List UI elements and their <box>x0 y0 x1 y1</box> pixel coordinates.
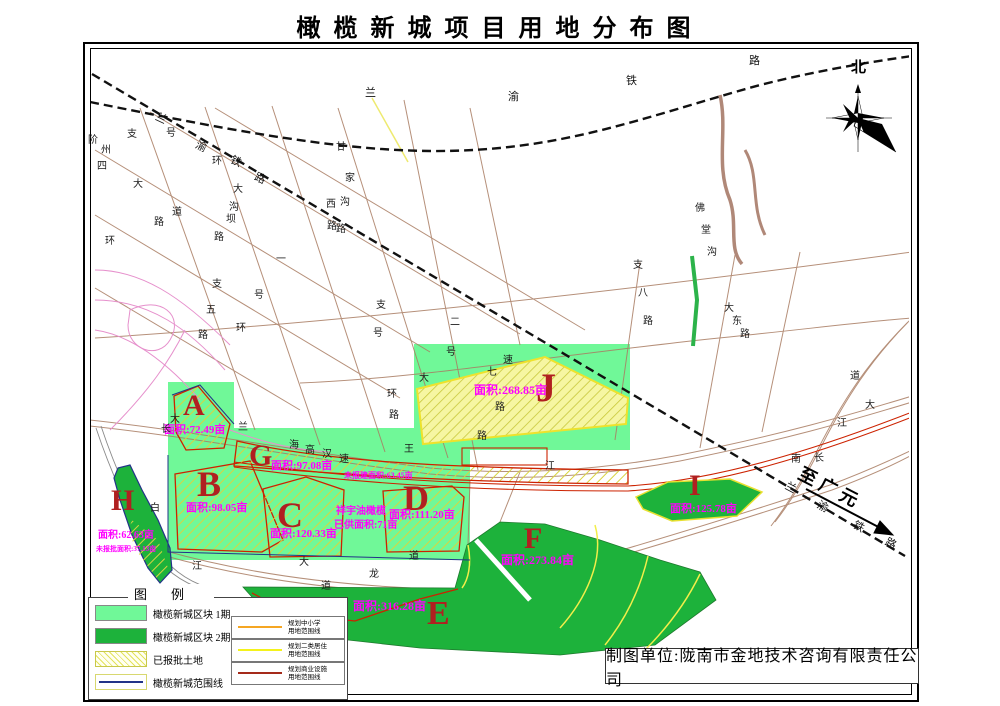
road-name-label: 支 <box>212 280 222 290</box>
legend-line-label: 规划中小学用地范围线 <box>288 620 321 635</box>
north-label: 北 <box>851 56 866 77</box>
road-name-label: 路 <box>643 317 653 327</box>
road-name-label: 东 <box>732 317 742 327</box>
legend-line-label: 规划二类居住用地范围线 <box>288 643 327 658</box>
zone-area-label-I: 面积:125.78亩 <box>670 504 737 515</box>
road-name-label: 汉 <box>322 450 332 460</box>
road-name-label: 长 <box>814 454 824 464</box>
road-name-label: 江 <box>837 419 847 429</box>
road-name-label: 道 <box>321 582 331 592</box>
road-name-label: 八 <box>638 289 648 299</box>
railway-name-label: 渝 <box>508 92 519 103</box>
zone-area-label-C: 面积:120.33亩 <box>270 529 337 540</box>
road-name-label: 大 <box>299 558 309 568</box>
zone-letter-G: G <box>249 441 272 471</box>
road-name-label: 路 <box>198 331 208 341</box>
caption-box: 制图单位:陇南市金地技术咨询有限责任公司 <box>605 648 919 684</box>
road-name-label: 环 <box>236 324 246 334</box>
road-name-label: 支 <box>376 301 386 311</box>
road-name-label: 江 <box>192 562 202 572</box>
road-name-label: 号 <box>166 129 176 139</box>
road-name-label: 环 <box>105 237 115 247</box>
road-name-label: 号 <box>254 291 264 301</box>
legend-area-label: 橄榄新城区块 2期 <box>153 629 231 644</box>
road-name-label: 大 <box>170 415 180 425</box>
road-name-label: 路 <box>740 330 750 340</box>
zone-letter-I: I <box>689 471 701 501</box>
railway-name-label: 路 <box>749 56 760 67</box>
zone-area-label-G: 面积:97.08亩 <box>271 461 332 472</box>
zone-area-label-B: 面积:98.05亩 <box>186 503 247 514</box>
road-name-label: 兰 <box>238 423 248 433</box>
road-name-label: 七 <box>487 368 497 378</box>
legend-line-label: 规划商业设施用地范围线 <box>288 666 327 681</box>
legend-title: 图例 <box>128 584 214 603</box>
road-name-label: 路 <box>154 218 164 228</box>
zone-extra-label-G: 未报建面积:63.45亩 <box>344 472 413 480</box>
legend-area-label: 已报批土地 <box>153 652 203 667</box>
legend-swatch-fill-dark <box>95 628 147 644</box>
note-label-0: 祥宇油橄榄 <box>336 507 386 517</box>
road-name-label: 堂 <box>701 226 711 236</box>
road-name-label: 长 <box>161 425 171 435</box>
road-name-label: 高 <box>305 446 315 456</box>
legend-line-item: 规划商业设施用地范围线 <box>231 662 345 685</box>
road-name-label: 二 <box>450 318 460 328</box>
road-name-label: 环 <box>212 157 222 167</box>
road-name-label: 路 <box>495 403 505 413</box>
zone-area-label-A: 面积:72.49亩 <box>164 425 225 436</box>
legend-area-label: 橄榄新城范围线 <box>153 675 223 690</box>
legend-line-item: 规划二类居住用地范围线 <box>231 639 345 662</box>
legend-line-swatch <box>238 626 282 628</box>
road-name-label: 大 <box>133 180 143 190</box>
map-sheet: 橄榄新城项目用地分布图 <box>0 0 1000 706</box>
railway-name-label: 兰 <box>365 88 376 99</box>
road-name-label: 江 <box>545 462 555 472</box>
road-name-label: 大 <box>724 304 734 314</box>
road-name-label: 路 <box>327 222 337 232</box>
road-name-label: 路 <box>214 233 224 243</box>
road-name-label: 州 <box>101 146 111 156</box>
legend-area-label: 橄榄新城区块 1期 <box>153 606 231 621</box>
caption-text: 制图单位:陇南市金地技术咨询有限责任公司 <box>606 642 918 690</box>
legend-line-swatch <box>238 672 282 674</box>
road-name-label: 路 <box>477 432 487 442</box>
road-name-label: 沟 <box>340 198 350 208</box>
legend-panel: 橄榄新城区块 1期橄榄新城区块 2期已报批土地橄榄新城范围线规划中小学用地范围线… <box>88 597 348 700</box>
road-name-label: 甘 <box>336 143 346 153</box>
legend-line-swatch <box>238 649 282 651</box>
road-name-label: 沟 <box>229 203 239 213</box>
road-name-label: 路 <box>389 411 399 421</box>
road-name-label: 号 <box>373 329 383 339</box>
road-name-label: 佛 <box>695 204 705 214</box>
zone-area-label-H: 面积:62.63亩 <box>98 531 154 541</box>
road-name-label: 道 <box>172 208 182 218</box>
road-name-label: 西 <box>326 200 336 210</box>
road-name-label: 白 <box>150 504 160 514</box>
road-name-label: 南 <box>791 455 801 465</box>
road-name-label: 五 <box>206 306 216 316</box>
road-name-label: 阶 <box>88 136 98 146</box>
legend-swatch-hatch <box>95 651 147 667</box>
railway-name-label: 铁 <box>626 76 637 87</box>
zone-letter-F: F <box>524 524 542 554</box>
road-name-label: 道 <box>850 372 860 382</box>
road-name-label: 海 <box>289 441 299 451</box>
zone-area-label-F: 面积:273.84亩 <box>501 554 574 566</box>
road-name-label: 沟 <box>707 248 717 258</box>
road-name-label: 坝 <box>226 215 236 225</box>
road-name-label: 号 <box>446 348 456 358</box>
note-label-1: 已供面积:71亩 <box>334 521 397 531</box>
zone-area-label-D: 面积:111.20亩 <box>389 510 455 521</box>
zone-area-label-J: 面积:268.85亩 <box>474 384 547 396</box>
road-name-label: 支 <box>633 261 643 271</box>
road-name-label: 环 <box>387 390 397 400</box>
zone-extra-label-H: 未报批面积:37.13亩 <box>96 546 156 553</box>
road-name-label: 道 <box>409 552 419 562</box>
road-name-label: 大 <box>233 185 243 195</box>
road-name-label: 家 <box>345 174 355 184</box>
road-name-label: 路 <box>336 225 346 235</box>
road-name-label: 大 <box>865 401 875 411</box>
zone-letter-B: B <box>197 466 221 502</box>
zone-area-label-E: 面积:316.28亩 <box>353 600 426 612</box>
road-name-label: 王 <box>404 445 414 455</box>
zone-letter-E: E <box>427 597 450 631</box>
road-name-label: 龙 <box>369 570 379 580</box>
zone-letter-H: H <box>111 486 134 516</box>
road-name-label: 大 <box>419 374 429 384</box>
road-name-label: 支 <box>127 130 137 140</box>
legend-line-item: 规划中小学用地范围线 <box>231 616 345 639</box>
zone-letter-A: A <box>183 391 205 421</box>
legend-swatch-fill-light <box>95 605 147 621</box>
road-name-label: 速 <box>339 455 349 465</box>
legend-swatch-line-blue <box>95 674 147 690</box>
road-name-label: 速 <box>503 356 513 366</box>
road-name-label: 一 <box>276 255 286 265</box>
road-name-label: 四 <box>97 162 107 172</box>
